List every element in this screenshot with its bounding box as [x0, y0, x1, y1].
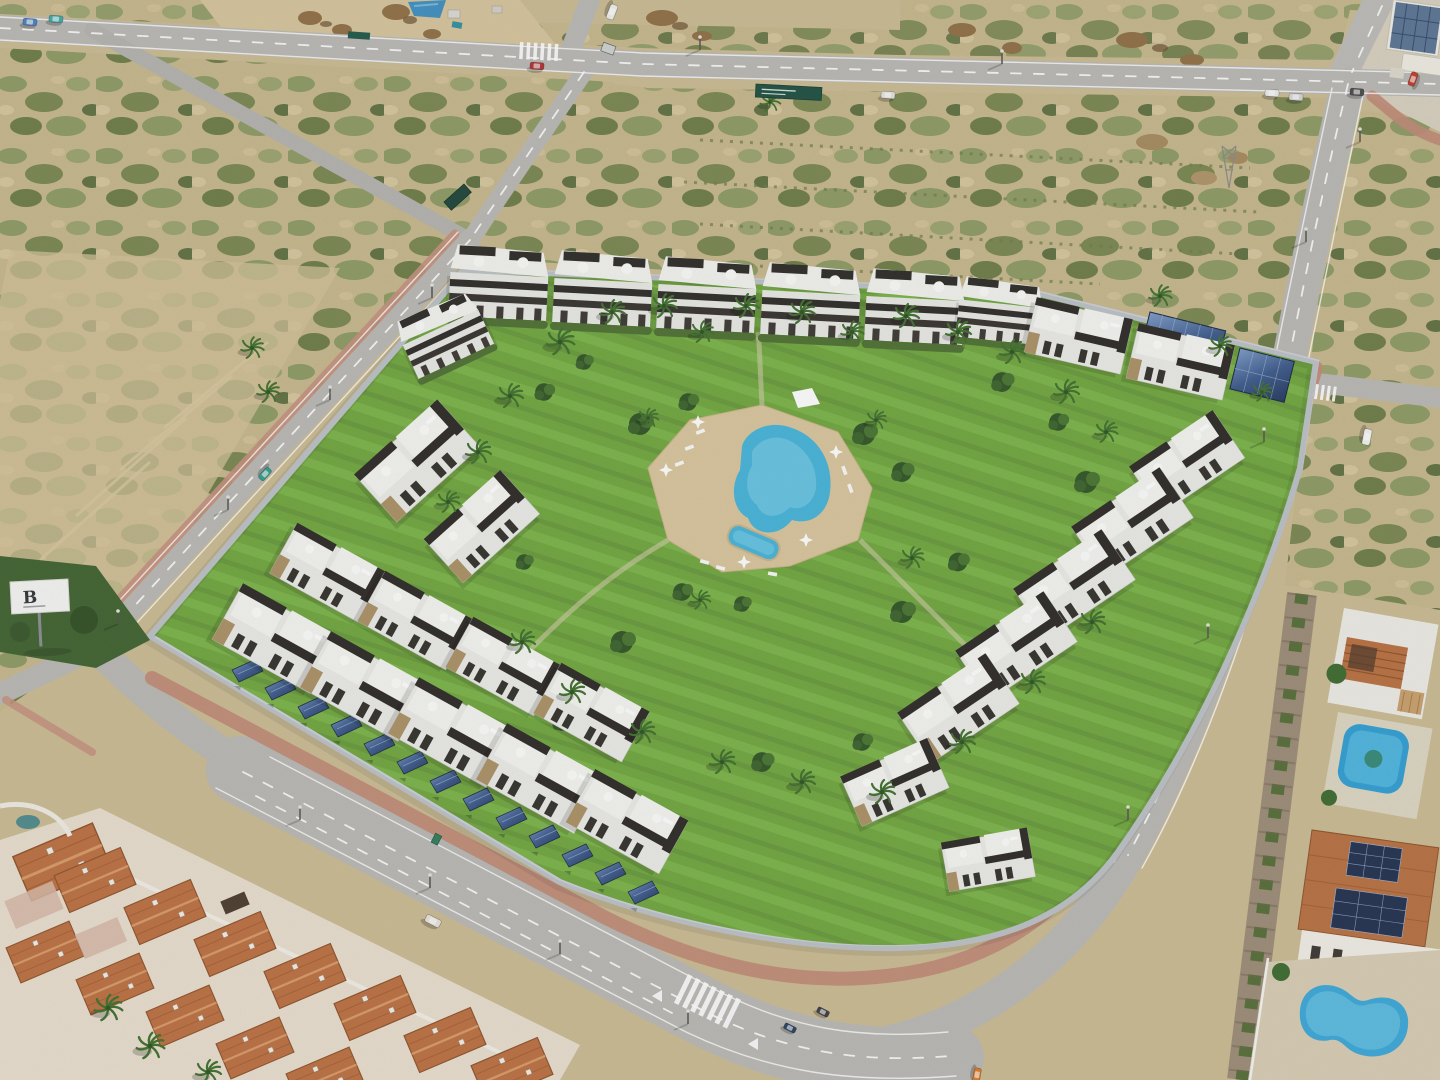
- aerial-render: B: [0, 0, 1440, 1080]
